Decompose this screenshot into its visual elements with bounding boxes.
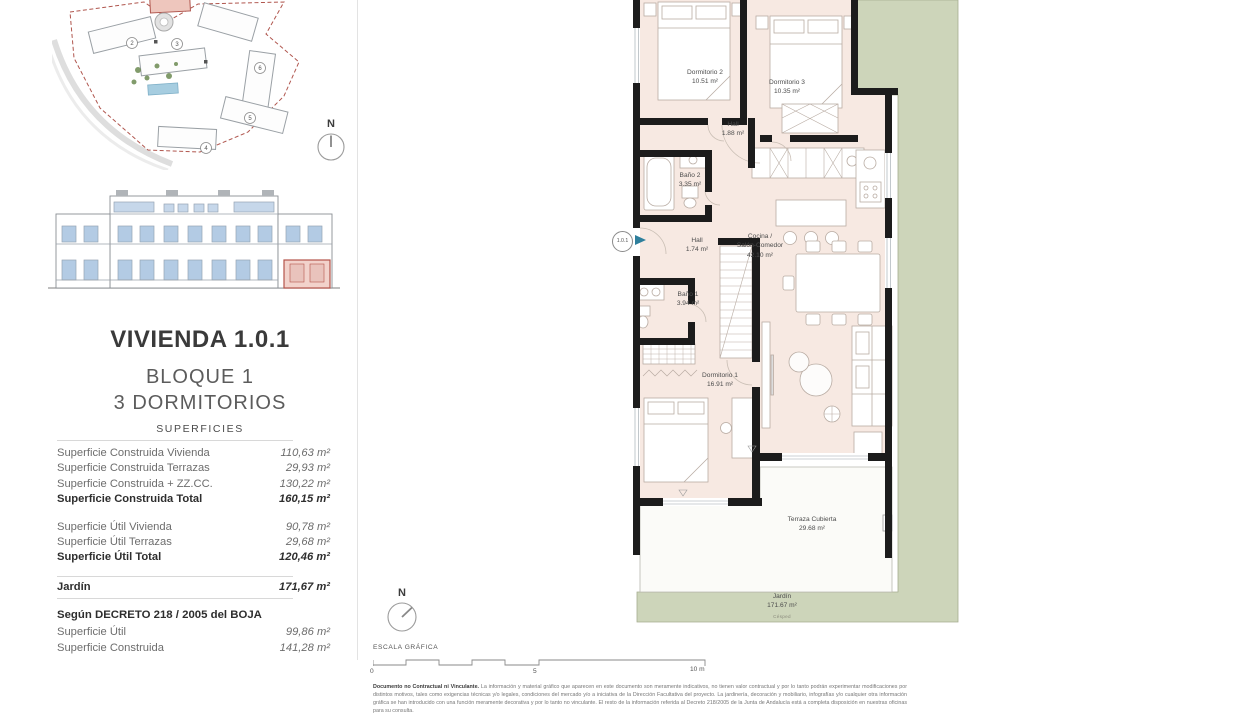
north-arrow-top: N: [313, 118, 349, 162]
unit-marker: 1.0.1: [612, 231, 633, 252]
room-label-terraza: Terraza Cubierta29.68 m²: [760, 516, 864, 533]
surfaces-table: Superficie Construida Vivienda110,63 m² …: [57, 440, 330, 656]
surface-value: 99,86 m²: [286, 625, 330, 640]
surface-label: Superficie Útil Vivienda: [57, 520, 172, 535]
surface-value: 110,63 m²: [280, 446, 330, 461]
garden-row: Jardín171,67 m²: [57, 577, 330, 598]
surface-value: 171,67 m²: [279, 580, 330, 595]
room-label-bano-2: Baño 23.35 m²: [658, 172, 722, 189]
surface-value: 130,22 m²: [280, 477, 330, 492]
surface-label: Superficie Útil Total: [57, 550, 161, 565]
surfaces-heading: SUPERFICIES: [40, 423, 360, 435]
scale-tick-10: 10 m: [690, 666, 705, 673]
floor-plan: 1.0.1 Dormitorio 210.51 m² Dormitorio 31…: [600, 0, 1000, 665]
room-label-dormitorio-3: Dormitorio 310.35 m²: [745, 79, 829, 96]
surface-value: 29,93 m²: [286, 461, 330, 476]
surface-value: 29,68 m²: [286, 535, 330, 550]
block-name: BLOQUE 1: [40, 364, 360, 390]
cesped-note: Césped: [730, 613, 834, 622]
surface-value: 90,78 m²: [286, 520, 330, 535]
table-row: Superficie Construida + ZZ.CC.130,22 m²: [57, 477, 330, 492]
surface-label: Superficie Construida Total: [57, 492, 202, 507]
page-title: VIVIENDA 1.0.1: [40, 326, 360, 354]
scale-bar: [373, 654, 713, 670]
room-label-bano-1: Baño 13.94 m²: [656, 291, 720, 308]
table-row-total: Superficie Útil Total120,46 m²: [57, 550, 330, 565]
bedrooms-name: 3 DORMITORIOS: [40, 390, 360, 416]
surface-label: Superficie Útil Terrazas: [57, 535, 172, 550]
panel-divider: [357, 0, 358, 660]
north-compass-icon: [316, 132, 346, 162]
entrance-arrow-icon: [635, 235, 646, 245]
north-arrow-plan: N: [384, 587, 420, 633]
scale-tick-0: 0: [370, 668, 374, 675]
scale-tick-5: 5: [533, 668, 537, 675]
surface-label: Superficie Útil: [57, 625, 126, 640]
room-label-hall-upper: Hall1.88 m²: [703, 121, 763, 138]
table-row: Superficie Útil99,86 m²: [57, 625, 330, 640]
room-label-dormitorio-2: Dormitorio 210.51 m²: [663, 69, 747, 86]
surface-label: Superficie Construida + ZZ.CC.: [57, 477, 213, 492]
north-label: N: [384, 587, 420, 599]
table-row: Superficie Construida Terrazas29,93 m²: [57, 461, 330, 476]
decree-heading: Según DECRETO 218 / 2005 del BOJA: [57, 607, 330, 623]
disclaimer: Documento no Contractual ni Vinculante. …: [373, 684, 907, 716]
table-row: Superficie Útil Vivienda90,78 m²: [57, 520, 330, 535]
surface-label: Superficie Construida Terrazas: [57, 461, 210, 476]
north-label: N: [313, 118, 349, 130]
room-label-dormitorio-1: Dormitorio 116.91 m²: [678, 372, 762, 389]
room-label-jardin: Jardín171.67 m²Césped: [730, 593, 834, 622]
scale-heading: ESCALA GRÁFICA: [373, 644, 438, 651]
floor-plan-drawing: [600, 0, 1000, 665]
block-subtitle: BLOQUE 1 3 DORMITORIOS: [40, 364, 360, 416]
site-plan: 2 3 4 5 6: [52, 0, 352, 170]
table-row: Superficie Construida Vivienda110,63 m²: [57, 446, 330, 461]
table-row: Superficie Construida141,28 m²: [57, 641, 330, 656]
table-row-total: Superficie Construida Total160,15 m²: [57, 492, 330, 507]
surface-label: Jardín: [57, 580, 91, 595]
surface-value: 141,28 m²: [280, 641, 330, 656]
surface-value: 160,15 m²: [279, 492, 330, 507]
room-label-cocina-salon: Cocina /Salón-Comedor42.10 m²: [714, 233, 806, 261]
surface-label: Superficie Construida: [57, 641, 164, 656]
surface-value: 120,46 m²: [279, 550, 330, 565]
surface-label: Superficie Construida Vivienda: [57, 446, 210, 461]
table-row: Superficie Útil Terrazas29,68 m²: [57, 535, 330, 550]
north-compass-icon: [386, 601, 418, 633]
disclaimer-lead: Documento no Contractual ni Vinculante.: [373, 684, 479, 690]
building-elevation: [48, 186, 340, 294]
brochure-page: { "colors":{"wall":"#1c1c1c","floor_pink…: [0, 0, 1240, 720]
